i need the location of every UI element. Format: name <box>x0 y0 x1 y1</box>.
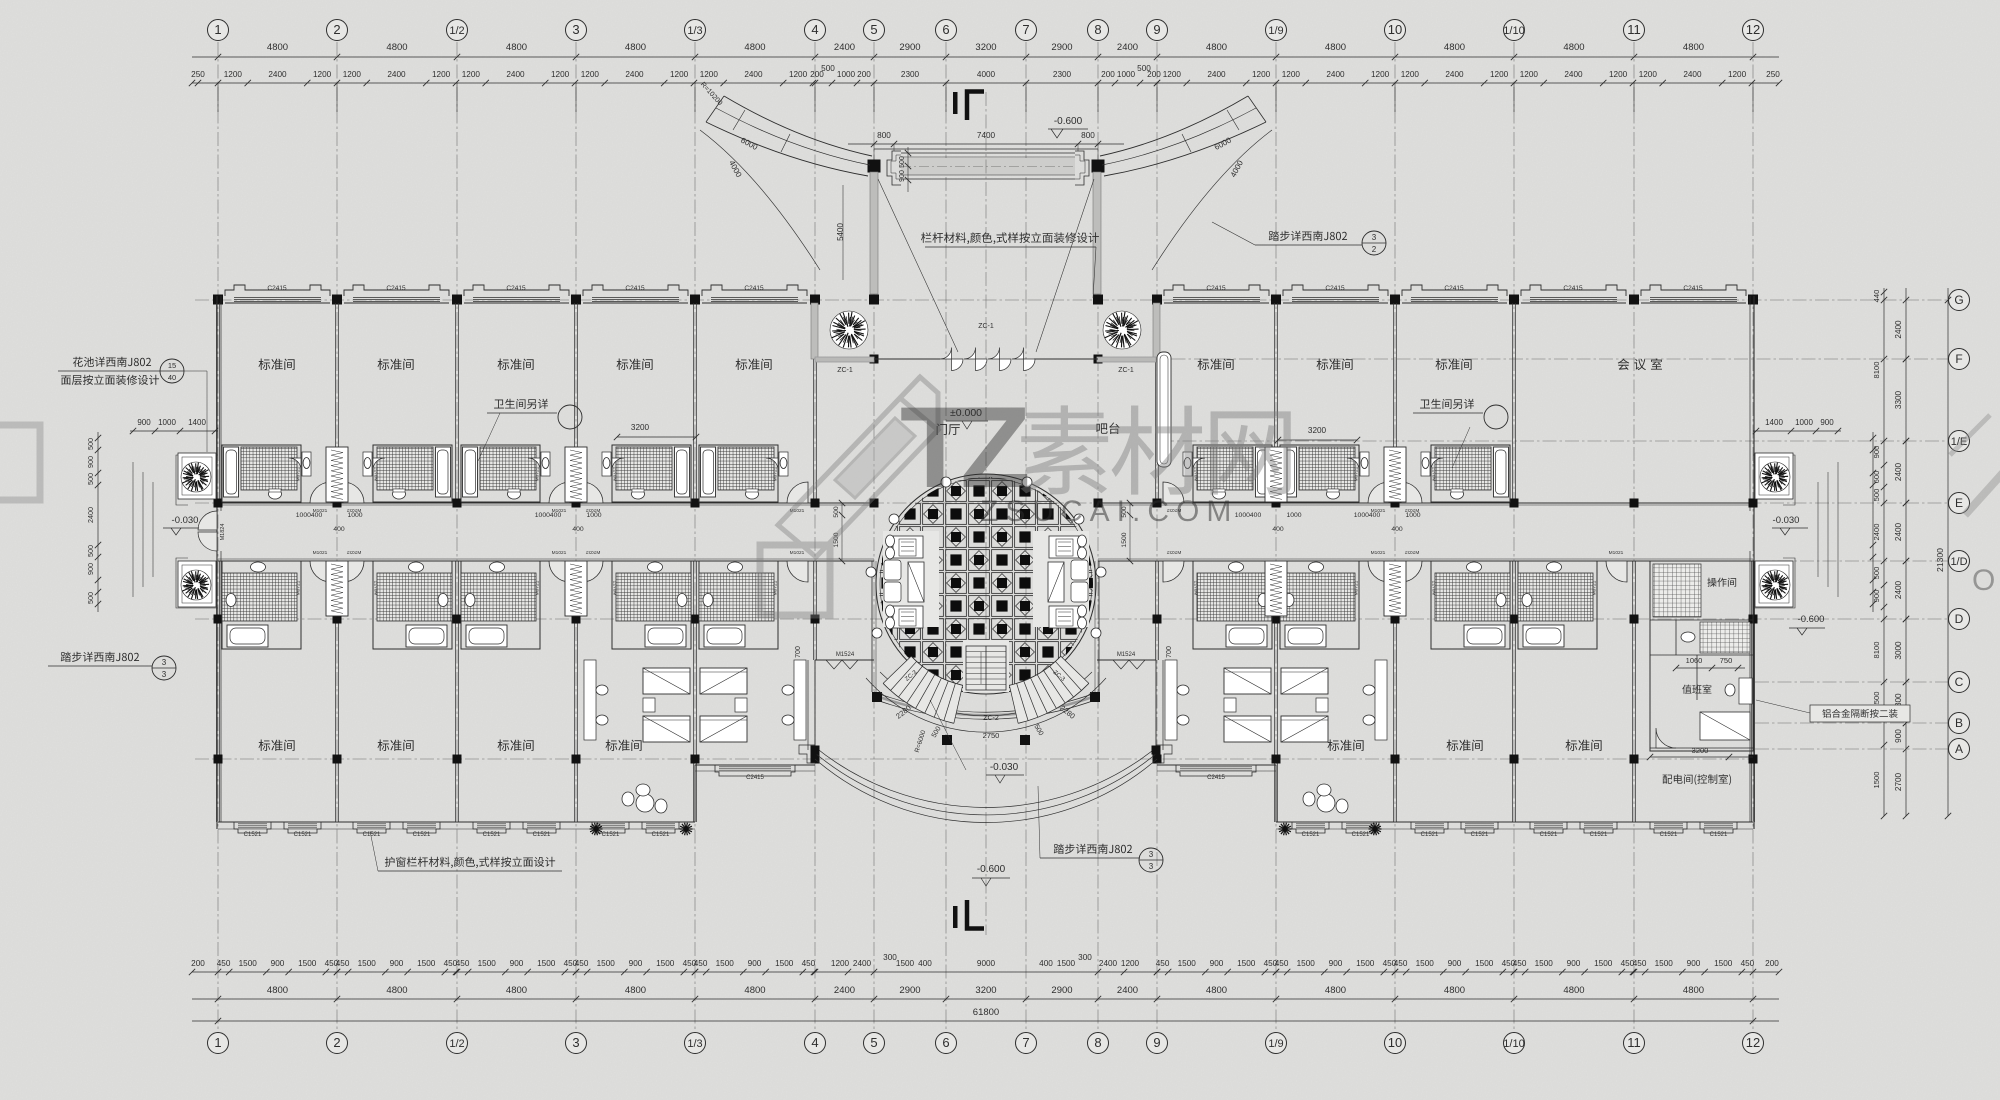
svg-text:1000400: 1000400 <box>1354 512 1381 519</box>
svg-text:1000: 1000 <box>1286 512 1301 519</box>
svg-text:440: 440 <box>1872 290 1881 303</box>
svg-text:1500: 1500 <box>1178 959 1197 968</box>
svg-text:400: 400 <box>1272 526 1284 533</box>
svg-text:500: 500 <box>833 506 840 518</box>
svg-text:8100: 8100 <box>1872 642 1881 659</box>
svg-text:4800: 4800 <box>744 985 765 996</box>
svg-text:4800: 4800 <box>744 42 765 53</box>
svg-text:C2415: C2415 <box>744 285 764 292</box>
svg-text:2400: 2400 <box>387 70 406 79</box>
svg-text:300: 300 <box>1078 953 1092 962</box>
svg-text:2400: 2400 <box>86 507 95 523</box>
svg-text:1200: 1200 <box>670 70 689 79</box>
svg-text:4800: 4800 <box>1563 985 1584 996</box>
svg-text:500: 500 <box>86 592 95 604</box>
svg-text:2400: 2400 <box>506 70 525 79</box>
svg-text:1/2: 1/2 <box>449 25 464 37</box>
svg-text:450: 450 <box>1741 959 1755 968</box>
svg-text:3200: 3200 <box>631 423 650 432</box>
svg-text:1200: 1200 <box>432 70 451 79</box>
svg-text:400: 400 <box>1039 959 1053 968</box>
svg-text:10: 10 <box>1388 1035 1402 1050</box>
svg-text:C1521: C1521 <box>1471 832 1489 838</box>
svg-text:1500: 1500 <box>537 959 556 968</box>
svg-text:6: 6 <box>942 22 949 37</box>
svg-text:M0721: M0721 <box>773 580 779 595</box>
svg-text:1500: 1500 <box>716 959 735 968</box>
svg-text:3: 3 <box>572 1035 579 1050</box>
svg-text:1/9: 1/9 <box>1268 1038 1283 1050</box>
svg-text:1200: 1200 <box>1121 959 1140 968</box>
svg-text:1500: 1500 <box>656 959 675 968</box>
svg-text:C2415: C2415 <box>746 775 764 781</box>
svg-text:TZ: TZ <box>900 384 1027 512</box>
svg-text:1000400: 1000400 <box>1235 512 1262 519</box>
svg-text:M0721: M0721 <box>296 580 302 595</box>
svg-text:C2415: C2415 <box>625 285 645 292</box>
svg-text:2400: 2400 <box>1564 70 1583 79</box>
svg-text:250: 250 <box>191 70 205 79</box>
svg-text:M1021: M1021 <box>1166 550 1181 556</box>
svg-text:C2415: C2415 <box>1206 285 1226 292</box>
svg-text:4800: 4800 <box>1563 42 1584 53</box>
svg-text:-0.600: -0.600 <box>1798 614 1825 625</box>
svg-text:3: 3 <box>162 670 167 679</box>
svg-text:C2415: C2415 <box>1563 285 1583 292</box>
svg-text:3200: 3200 <box>975 42 996 53</box>
svg-text:G: G <box>1954 293 1963 307</box>
svg-text:900: 900 <box>1894 729 1903 743</box>
svg-text:400: 400 <box>1391 526 1403 533</box>
svg-text:4800: 4800 <box>1444 985 1465 996</box>
svg-text:M0721: M0721 <box>1431 580 1437 595</box>
svg-text:2400: 2400 <box>1894 320 1903 339</box>
svg-text:4: 4 <box>811 22 818 37</box>
svg-text:2900: 2900 <box>899 42 920 53</box>
svg-text:F: F <box>1955 352 1962 366</box>
svg-text:250: 250 <box>1766 70 1780 79</box>
svg-text:-0.030: -0.030 <box>172 515 199 526</box>
svg-text:200: 200 <box>191 959 205 968</box>
svg-text:O M: O M <box>1972 564 2000 597</box>
svg-text:450: 450 <box>217 959 231 968</box>
svg-text:C1521: C1521 <box>1540 832 1558 838</box>
svg-text:1500: 1500 <box>358 959 377 968</box>
svg-text:2400: 2400 <box>268 70 287 79</box>
svg-text:4800: 4800 <box>1683 985 1704 996</box>
svg-text:M0721: M0721 <box>612 580 618 595</box>
svg-text:2900: 2900 <box>1051 42 1072 53</box>
svg-text:2: 2 <box>1372 245 1377 254</box>
svg-text:1500: 1500 <box>1655 959 1674 968</box>
svg-text:3000: 3000 <box>1894 641 1903 660</box>
svg-text:900: 900 <box>1567 959 1581 968</box>
svg-text:2400: 2400 <box>744 70 763 79</box>
svg-text:11: 11 <box>1627 1035 1641 1050</box>
svg-text:M1021: M1021 <box>313 550 328 556</box>
svg-text:2300: 2300 <box>1053 70 1072 79</box>
svg-text:C1521: C1521 <box>533 832 551 838</box>
svg-text:E: E <box>1955 496 1963 510</box>
svg-text:M0721: M0721 <box>1193 466 1199 481</box>
svg-text:1500: 1500 <box>478 959 497 968</box>
svg-text:900: 900 <box>1210 959 1224 968</box>
svg-text:-0.030: -0.030 <box>1773 515 1800 526</box>
svg-text:4000: 4000 <box>977 70 996 79</box>
svg-text:900: 900 <box>390 959 404 968</box>
svg-text:-0.600: -0.600 <box>1054 116 1083 127</box>
svg-text:3200: 3200 <box>1692 746 1709 755</box>
svg-text:1000: 1000 <box>1795 418 1813 427</box>
svg-text:1500: 1500 <box>1535 959 1554 968</box>
svg-text:1500: 1500 <box>1714 959 1733 968</box>
svg-text:1200: 1200 <box>1163 70 1182 79</box>
svg-text:C2415: C2415 <box>1325 285 1345 292</box>
svg-text:2400: 2400 <box>853 959 872 968</box>
svg-text:4800: 4800 <box>386 985 407 996</box>
svg-text:1000: 1000 <box>837 70 856 79</box>
svg-text:900: 900 <box>1448 959 1462 968</box>
svg-text:2400: 2400 <box>834 985 855 996</box>
svg-text:1200: 1200 <box>551 70 570 79</box>
svg-text:4800: 4800 <box>1325 985 1346 996</box>
svg-text:4800: 4800 <box>506 985 527 996</box>
svg-text:M1524: M1524 <box>1117 652 1136 658</box>
svg-text:61800: 61800 <box>973 1007 999 1018</box>
svg-text:1500: 1500 <box>298 959 317 968</box>
svg-text:1200: 1200 <box>1371 70 1390 79</box>
svg-text:9: 9 <box>1153 1035 1160 1050</box>
svg-text:1500: 1500 <box>1297 959 1316 968</box>
svg-text:M0721: M0721 <box>773 466 779 481</box>
svg-text:900: 900 <box>1329 959 1343 968</box>
svg-text:8: 8 <box>1094 1035 1101 1050</box>
svg-text:40: 40 <box>168 373 176 382</box>
svg-text:4800: 4800 <box>267 42 288 53</box>
svg-text:4800: 4800 <box>1444 42 1465 53</box>
svg-text:4800: 4800 <box>386 42 407 53</box>
svg-text:3200: 3200 <box>975 985 996 996</box>
svg-text:4800: 4800 <box>1206 985 1227 996</box>
svg-text:1200: 1200 <box>313 70 332 79</box>
svg-text:900: 900 <box>748 959 762 968</box>
svg-text:6: 6 <box>942 1035 949 1050</box>
svg-text:2400: 2400 <box>1894 580 1903 599</box>
svg-text:1060: 1060 <box>1686 656 1703 665</box>
svg-text:15: 15 <box>168 361 176 370</box>
svg-text:C1521: C1521 <box>1590 832 1608 838</box>
svg-text:450: 450 <box>694 959 708 968</box>
svg-text:2400: 2400 <box>1099 959 1118 968</box>
svg-text:1000400: 1000400 <box>535 512 562 519</box>
svg-text:3: 3 <box>572 22 579 37</box>
svg-text:1400: 1400 <box>188 418 206 427</box>
svg-text:1: 1 <box>214 1035 221 1050</box>
svg-text:1500: 1500 <box>1416 959 1435 968</box>
svg-text:900: 900 <box>899 170 906 182</box>
svg-text:ZC-1: ZC-1 <box>837 367 853 374</box>
svg-text:450: 450 <box>1275 959 1289 968</box>
svg-text:11: 11 <box>1627 22 1641 37</box>
svg-text:M0721: M0721 <box>535 466 541 481</box>
svg-text:8100: 8100 <box>1872 362 1881 379</box>
svg-text:700: 700 <box>1166 646 1173 658</box>
svg-text:C2415: C2415 <box>1683 285 1703 292</box>
svg-text:1200: 1200 <box>789 70 808 79</box>
svg-text:M0721: M0721 <box>1193 580 1199 595</box>
svg-text:M1021: M1021 <box>790 550 805 556</box>
svg-text:1500: 1500 <box>775 959 794 968</box>
svg-text:1500: 1500 <box>1356 959 1375 968</box>
svg-text:450: 450 <box>1633 959 1647 968</box>
svg-text:1200: 1200 <box>1490 70 1509 79</box>
svg-text:5400: 5400 <box>836 223 845 241</box>
svg-text:M1021: M1021 <box>1371 550 1386 556</box>
svg-text:C1521: C1521 <box>294 832 312 838</box>
svg-text:1500: 1500 <box>1475 959 1494 968</box>
svg-text:C1521: C1521 <box>1660 832 1678 838</box>
svg-text:800: 800 <box>1081 131 1095 140</box>
svg-text:D: D <box>1955 612 1964 626</box>
svg-text:3200: 3200 <box>1308 426 1327 435</box>
svg-text:400: 400 <box>333 526 345 533</box>
svg-text:200: 200 <box>1101 70 1115 79</box>
svg-text:ZC-1: ZC-1 <box>1118 367 1134 374</box>
svg-text:2: 2 <box>333 22 340 37</box>
svg-text:900: 900 <box>629 959 643 968</box>
svg-text:A: A <box>1955 742 1963 756</box>
svg-text:1500: 1500 <box>239 959 258 968</box>
svg-text:M1824: M1824 <box>220 524 226 541</box>
svg-text:M0721: M0721 <box>373 466 379 481</box>
svg-text:5: 5 <box>870 1035 877 1050</box>
svg-text:1200: 1200 <box>1282 70 1301 79</box>
svg-text:M0721: M0721 <box>612 466 618 481</box>
svg-text:3: 3 <box>162 658 167 667</box>
svg-text:900: 900 <box>86 456 95 468</box>
svg-text:M1021: M1021 <box>585 550 600 556</box>
svg-text:1: 1 <box>214 22 221 37</box>
svg-text:4800: 4800 <box>1683 42 1704 53</box>
svg-text:1000400: 1000400 <box>296 512 323 519</box>
svg-text:2400: 2400 <box>1894 522 1903 541</box>
svg-text:B: B <box>1955 716 1963 730</box>
svg-text:1500: 1500 <box>1121 532 1128 547</box>
svg-text:500: 500 <box>899 156 906 168</box>
svg-text:10: 10 <box>1388 22 1402 37</box>
svg-text:900: 900 <box>1687 959 1701 968</box>
svg-text:4800: 4800 <box>1325 42 1346 53</box>
svg-text:450: 450 <box>456 959 470 968</box>
svg-text:1200: 1200 <box>224 70 243 79</box>
svg-text:C1521: C1521 <box>1352 832 1370 838</box>
svg-text:200: 200 <box>857 70 871 79</box>
svg-text:4800: 4800 <box>506 42 527 53</box>
svg-text:M0721: M0721 <box>1592 580 1598 595</box>
svg-text:C2415: C2415 <box>1207 775 1225 781</box>
svg-text:1500: 1500 <box>597 959 616 968</box>
svg-text:C1521: C1521 <box>1710 832 1728 838</box>
svg-text:2400: 2400 <box>834 42 855 53</box>
svg-text:2900: 2900 <box>1051 985 1072 996</box>
svg-text:12: 12 <box>1746 22 1760 37</box>
svg-text:M0721: M0721 <box>1431 466 1437 481</box>
svg-text:-0.600: -0.600 <box>977 864 1006 875</box>
svg-text:1200: 1200 <box>343 70 362 79</box>
svg-text:900: 900 <box>137 418 151 427</box>
svg-text:1200: 1200 <box>581 70 600 79</box>
svg-text:C1521: C1521 <box>652 832 670 838</box>
svg-text:1/D: 1/D <box>1950 556 1967 568</box>
svg-text:C2415: C2415 <box>267 285 287 292</box>
svg-text:2700: 2700 <box>1894 772 1903 791</box>
svg-text:1000: 1000 <box>347 512 362 519</box>
svg-text:450: 450 <box>802 959 816 968</box>
svg-text:1500: 1500 <box>1237 959 1256 968</box>
svg-text:2400: 2400 <box>1326 70 1345 79</box>
svg-text:7: 7 <box>1022 1035 1029 1050</box>
svg-text:C1521: C1521 <box>244 832 262 838</box>
svg-text:450: 450 <box>1394 959 1408 968</box>
svg-text:5: 5 <box>870 22 877 37</box>
svg-text:2400: 2400 <box>1117 42 1138 53</box>
svg-text:2400: 2400 <box>625 70 644 79</box>
svg-text:M0721: M0721 <box>1354 580 1360 595</box>
svg-text:2750: 2750 <box>983 731 1000 740</box>
svg-text:500: 500 <box>86 438 95 450</box>
svg-text:750: 750 <box>1720 656 1733 665</box>
svg-text:12: 12 <box>1746 1035 1760 1050</box>
svg-text:M0721: M0721 <box>535 580 541 595</box>
svg-text:1500: 1500 <box>417 959 436 968</box>
svg-text:800: 800 <box>877 131 891 140</box>
svg-text:1500: 1500 <box>1057 959 1076 968</box>
svg-text:M1021: M1021 <box>1404 550 1419 556</box>
svg-text:C1521: C1521 <box>602 832 620 838</box>
svg-text:1500: 1500 <box>1594 959 1613 968</box>
svg-text:450: 450 <box>1156 959 1170 968</box>
svg-text:C2415: C2415 <box>386 285 406 292</box>
svg-text:450: 450 <box>575 959 589 968</box>
svg-text:C1521: C1521 <box>413 832 431 838</box>
svg-text:9: 9 <box>1153 22 1160 37</box>
svg-text:4: 4 <box>811 1035 818 1050</box>
svg-text:200: 200 <box>1765 959 1779 968</box>
svg-text:1/9: 1/9 <box>1268 25 1283 37</box>
svg-text:4800: 4800 <box>1206 42 1227 53</box>
svg-text:1200: 1200 <box>1639 70 1658 79</box>
svg-text:1200: 1200 <box>462 70 481 79</box>
svg-text:1500: 1500 <box>896 959 915 968</box>
svg-text:M0721: M0721 <box>296 466 302 481</box>
svg-text:3: 3 <box>1149 850 1154 859</box>
svg-text:C1521: C1521 <box>363 832 381 838</box>
svg-text:2900: 2900 <box>899 985 920 996</box>
svg-text:-0.030: -0.030 <box>990 762 1019 773</box>
svg-text:8: 8 <box>1094 22 1101 37</box>
svg-text:9000: 9000 <box>977 959 996 968</box>
svg-text:1/10: 1/10 <box>1503 25 1524 37</box>
svg-text:1200: 1200 <box>1520 70 1539 79</box>
svg-text:1000: 1000 <box>586 512 601 519</box>
svg-text:ZSUCAI.COM: ZSUCAI.COM <box>980 495 1238 528</box>
svg-text:1400: 1400 <box>1765 418 1783 427</box>
svg-text:2300: 2300 <box>901 70 920 79</box>
svg-text:1500: 1500 <box>1872 772 1881 789</box>
svg-text:1/2: 1/2 <box>449 1038 464 1050</box>
svg-text:200: 200 <box>810 70 824 79</box>
svg-text:C2415: C2415 <box>506 285 526 292</box>
svg-text:400: 400 <box>572 526 584 533</box>
svg-text:1200: 1200 <box>1401 70 1420 79</box>
svg-text:2: 2 <box>333 1035 340 1050</box>
svg-text:500: 500 <box>86 545 95 557</box>
svg-text:400: 400 <box>918 959 932 968</box>
svg-text:3: 3 <box>1149 862 1154 871</box>
svg-text:1/3: 1/3 <box>687 1038 702 1050</box>
svg-text:M0721: M0721 <box>1354 466 1360 481</box>
svg-text:2400: 2400 <box>1207 70 1226 79</box>
svg-text:450: 450 <box>1513 959 1527 968</box>
svg-text:500: 500 <box>86 473 95 485</box>
svg-text:200: 200 <box>1147 70 1161 79</box>
svg-text:C: C <box>1955 675 1964 689</box>
svg-text:1/10: 1/10 <box>1503 1038 1524 1050</box>
svg-text:900: 900 <box>510 959 524 968</box>
svg-text:C1521: C1521 <box>1302 832 1320 838</box>
svg-text:4800: 4800 <box>625 985 646 996</box>
svg-text:1000: 1000 <box>158 418 176 427</box>
svg-text:900: 900 <box>86 563 95 575</box>
svg-text:M1021: M1021 <box>1609 550 1624 556</box>
svg-text:2400: 2400 <box>1683 70 1702 79</box>
svg-text:1200: 1200 <box>831 959 850 968</box>
svg-text:3: 3 <box>1372 233 1377 242</box>
svg-text:1200: 1200 <box>1728 70 1747 79</box>
svg-text:1200: 1200 <box>1609 70 1628 79</box>
svg-text:C1521: C1521 <box>1421 832 1439 838</box>
svg-text:700: 700 <box>795 646 802 658</box>
svg-text:M1524: M1524 <box>836 652 855 658</box>
svg-text:2400: 2400 <box>1445 70 1464 79</box>
svg-text:3300: 3300 <box>1894 390 1903 409</box>
svg-text:1000: 1000 <box>1117 70 1136 79</box>
svg-text:M1021: M1021 <box>346 550 361 556</box>
svg-text:7: 7 <box>1022 22 1029 37</box>
svg-text:1/3: 1/3 <box>687 25 702 37</box>
svg-text:450: 450 <box>336 959 350 968</box>
svg-text:M0721: M0721 <box>373 580 379 595</box>
svg-text:C1521: C1521 <box>483 832 501 838</box>
svg-text:900: 900 <box>1820 418 1834 427</box>
svg-text:C2415: C2415 <box>1444 285 1464 292</box>
svg-text:1200: 1200 <box>700 70 719 79</box>
svg-text:900: 900 <box>271 959 285 968</box>
svg-text:2400: 2400 <box>1894 462 1903 481</box>
svg-text:4800: 4800 <box>625 42 646 53</box>
svg-text:2400: 2400 <box>1117 985 1138 996</box>
svg-text:1000: 1000 <box>1405 512 1420 519</box>
svg-text:4800: 4800 <box>267 985 288 996</box>
svg-text:M1021: M1021 <box>552 550 567 556</box>
svg-text:1200: 1200 <box>1252 70 1271 79</box>
svg-text:21300: 21300 <box>1935 548 1945 572</box>
